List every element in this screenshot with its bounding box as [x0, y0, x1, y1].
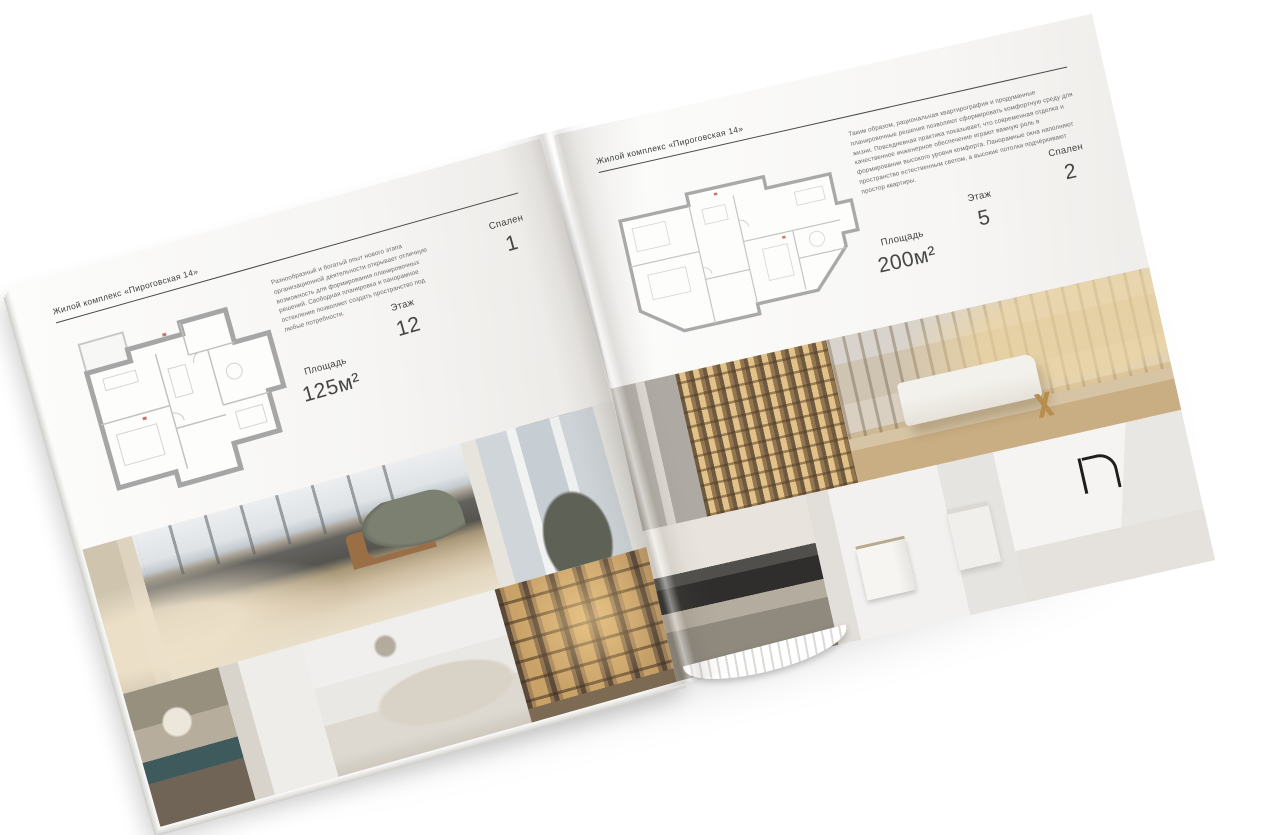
stat-bedrooms: Спален 1	[488, 212, 533, 260]
stat-floor-value: 12	[394, 312, 424, 342]
brochure-spread: Жилой комплекс «Пироговская 14»	[11, 0, 1220, 817]
right-info-column: Таким образом, рациональная квартирограф…	[848, 80, 1111, 309]
stat-floor-value: 5	[970, 204, 999, 233]
stat-area: Площадь 125м²	[296, 353, 364, 407]
floor-plan-drawing-200	[602, 130, 887, 359]
stat-area: Площадь 200м²	[872, 227, 938, 279]
scene: Жилой комплекс «Пироговская 14»	[0, 0, 1280, 835]
stat-floor: Этаж 12	[389, 297, 423, 342]
stat-floor-label: Этаж	[966, 188, 992, 204]
stat-floor: Этаж 5	[966, 188, 998, 232]
stat-bedrooms-value: 1	[492, 228, 532, 261]
stat-bedrooms: Спален 2	[1047, 141, 1090, 188]
stat-bedrooms-value: 2	[1051, 157, 1091, 188]
floor-plan-200	[602, 130, 888, 364]
